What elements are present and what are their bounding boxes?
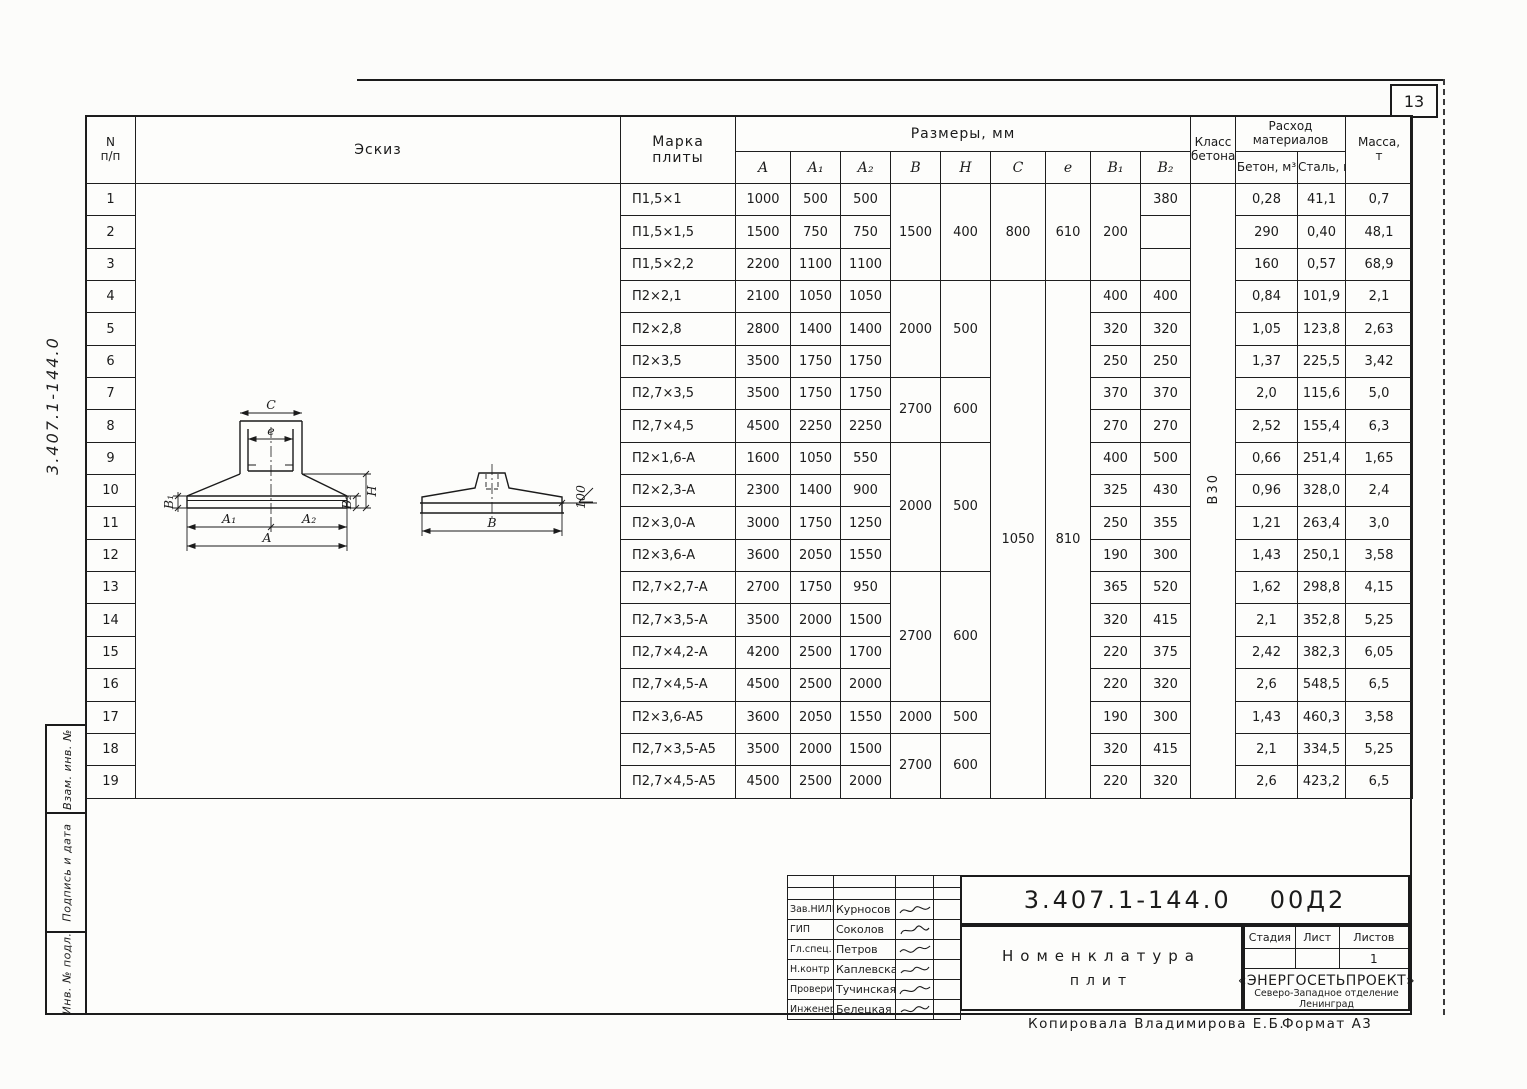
cell-concrete: 0,28 (1236, 184, 1298, 216)
cell-b2: 300 (1141, 701, 1191, 733)
cell-concrete: 1,21 (1236, 507, 1298, 539)
organization-cell: «ЭНЕРГОСЕТЬПРОЕКТ» Северо-Западное отдел… (1245, 969, 1408, 1015)
format-note: Формат А3 (1282, 1016, 1372, 1032)
signature-row-empty (788, 888, 961, 900)
col-header-materials: Расход материалов (1236, 116, 1346, 152)
cell-b2: 370 (1141, 378, 1191, 410)
cell-a1: 2500 (791, 636, 841, 668)
cell-a2: 1550 (841, 701, 891, 733)
cell-a: 1500 (736, 216, 791, 248)
cell-b: 2700 (891, 572, 941, 701)
signature-role: Н.контр (788, 960, 834, 980)
cell-a1: 1100 (791, 248, 841, 280)
page-number: 13 (1404, 92, 1424, 111)
cell-e: 810 (1046, 281, 1091, 799)
cell-b2: 430 (1141, 475, 1191, 507)
cell-b2: 355 (1141, 507, 1191, 539)
organization-city: Ленинград (1299, 1000, 1354, 1011)
signature-row: ГИП Соколов (788, 920, 961, 940)
document-title-line2: плит (1070, 973, 1133, 989)
signature-scribble (896, 900, 934, 920)
col-header-b: В (891, 152, 941, 184)
cell-b1: 220 (1091, 636, 1141, 668)
cell-a: 1600 (736, 442, 791, 474)
cell-n: 10 (86, 475, 136, 507)
cell-concrete: 2,52 (1236, 410, 1298, 442)
col-class-line1: Класс (1191, 136, 1235, 150)
cell-b1: 190 (1091, 701, 1141, 733)
cell-h: 500 (941, 281, 991, 378)
cell-steel: 423,2 (1298, 766, 1346, 798)
cell-a: 2100 (736, 281, 791, 313)
cell-h: 600 (941, 733, 991, 798)
cell-mass: 6,3 (1346, 410, 1413, 442)
cell-b1: 320 (1091, 733, 1141, 765)
cell-concrete: 2,1 (1236, 733, 1298, 765)
cell-a2: 1100 (841, 248, 891, 280)
col-header-mass: Масса, т (1346, 116, 1413, 184)
cell-mark: П2,7×4,5-А (621, 669, 736, 701)
cell-steel: 225,5 (1298, 345, 1346, 377)
stamp-box-inv-podl: Инв. № подл. (45, 931, 89, 1015)
cell-a2: 750 (841, 216, 891, 248)
cell-a2: 2250 (841, 410, 891, 442)
cell-a2: 1050 (841, 281, 891, 313)
cell-mass: 4,15 (1346, 572, 1413, 604)
sheets-label: Листов (1340, 927, 1408, 948)
dim-label-b1: В₁ (161, 495, 176, 510)
signature-row-empty (788, 876, 961, 888)
col-header-h: Н (941, 152, 991, 184)
cell-n: 11 (86, 507, 136, 539)
cell-mark: П2,7×4,5 (621, 410, 736, 442)
side-section-figure: В 100 (420, 464, 597, 536)
signature-table: Зав.НИЛКЭ Курносов ГИП Соколов Гл.спец. … (787, 875, 961, 1020)
cell-b1: 365 (1091, 572, 1141, 604)
col-header-b1: В₁ (1091, 152, 1141, 184)
cell-b2: 300 (1141, 539, 1191, 571)
col-header-concrete: Бетон, м³ (1236, 152, 1298, 184)
col-header-steel: Сталь, кг (1298, 152, 1346, 184)
cell-mass: 6,5 (1346, 766, 1413, 798)
dim-label-h: H (364, 484, 379, 497)
cell-a2: 1750 (841, 345, 891, 377)
stamp-label: Подпись и дата (61, 823, 74, 921)
cell-steel: 382,3 (1298, 636, 1346, 668)
cell-b2: 320 (1141, 313, 1191, 345)
cell-a2: 2000 (841, 766, 891, 798)
cell-a2: 2000 (841, 669, 891, 701)
cell-steel: 123,8 (1298, 313, 1346, 345)
cell-concrete: 2,1 (1236, 604, 1298, 636)
cell-b1: 270 (1091, 410, 1141, 442)
cell-a: 3600 (736, 539, 791, 571)
sheet-label: Лист (1296, 927, 1340, 948)
cell-b2: 270 (1141, 410, 1191, 442)
elevation-mark-100: 100 (573, 485, 588, 509)
cell-b1: 250 (1091, 345, 1141, 377)
scanned-drawing-sheet: { "page": { "number": "13", "copied_line… (0, 0, 1527, 1089)
document-number-cell: 3.407.1-144.0 00Д2 (960, 875, 1410, 925)
signature-scribble (896, 980, 934, 1000)
cell-b1: 250 (1091, 507, 1141, 539)
cell-n: 1 (86, 184, 136, 216)
signature-role: ГИП (788, 920, 834, 940)
cell-a2: 500 (841, 184, 891, 216)
signature-name: Петров (834, 940, 896, 960)
cell-b2: 380 (1141, 184, 1191, 216)
cell-n: 12 (86, 539, 136, 571)
front-section-figure: C e В₁ В₂ H А₁ А₂ А (161, 397, 379, 551)
cell-a: 2200 (736, 248, 791, 280)
cell-steel: 251,4 (1298, 442, 1346, 474)
cell-n: 18 (86, 733, 136, 765)
cell-n: 5 (86, 313, 136, 345)
dim-label-b: В (486, 515, 496, 530)
cell-b1: 220 (1091, 669, 1141, 701)
cell-a: 3500 (736, 604, 791, 636)
cell-concrete: 1,05 (1236, 313, 1298, 345)
cell-a1: 1750 (791, 572, 841, 604)
cell-b2: 415 (1141, 733, 1191, 765)
dim-label-b2: В₂ (339, 495, 354, 510)
cell-a: 2700 (736, 572, 791, 604)
cell-a1: 2000 (791, 604, 841, 636)
cell-b: 2000 (891, 701, 941, 733)
cell-mark: П2,7×3,5 (621, 378, 736, 410)
cell-concrete: 2,6 (1236, 766, 1298, 798)
cell-mark: П1,5×2,2 (621, 248, 736, 280)
cell-n: 15 (86, 636, 136, 668)
cell-b2: 320 (1141, 669, 1191, 701)
col-header-c: С (991, 152, 1046, 184)
stamp-label: Взам. инв. № (61, 729, 74, 810)
cell-steel: 298,8 (1298, 572, 1346, 604)
signature-row: Проверила Тучинская (788, 980, 961, 1000)
cell-mark: П2×2,8 (621, 313, 736, 345)
cell-mass: 5,25 (1346, 604, 1413, 636)
cell-a2: 1500 (841, 733, 891, 765)
cell-mass: 5,0 (1346, 378, 1413, 410)
cell-h: 600 (941, 378, 991, 443)
cell-b1 (1141, 248, 1191, 280)
signature-scribble (896, 1000, 934, 1020)
cell-a2: 1500 (841, 604, 891, 636)
cell-steel: 352,8 (1298, 604, 1346, 636)
signature-row: Зав.НИЛКЭ Курносов (788, 900, 961, 920)
cell-n: 13 (86, 572, 136, 604)
cell-a1: 1750 (791, 507, 841, 539)
stage-value (1245, 949, 1296, 968)
cell-steel: 68,9 (1346, 248, 1413, 280)
signature-role: Инженер (788, 1000, 834, 1020)
cell-b1: 320 (1091, 313, 1141, 345)
col-header-e: е (1046, 152, 1091, 184)
cell-a2: 550 (841, 442, 891, 474)
cell-n: 6 (86, 345, 136, 377)
cell-h: 600 (941, 572, 991, 701)
cell-a1: 1050 (791, 442, 841, 474)
cell-a1: 2050 (791, 539, 841, 571)
vertical-doc-number-text: 3.407.1-144.0 (43, 336, 62, 475)
col-header-sketch: Эскиз (136, 116, 621, 184)
cell-a1: 2050 (791, 701, 841, 733)
cell-a2: 1250 (841, 507, 891, 539)
dim-label-c: C (266, 397, 276, 412)
cell-b2: 290 (1236, 216, 1298, 248)
col-header-number: N п/п (86, 116, 136, 184)
cell-steel: 250,1 (1298, 539, 1346, 571)
stamp-box-podpis-data: Подпись и дата (45, 812, 89, 933)
cell-mark: П2,7×4,2-А (621, 636, 736, 668)
stamp-label: Инв. № подл. (61, 932, 74, 1014)
col-header-a1: А₁ (791, 152, 841, 184)
cell-mark: П2×3,6-А5 (621, 701, 736, 733)
cell-steel: 328,0 (1298, 475, 1346, 507)
organization-name: «ЭНЕРГОСЕТЬПРОЕКТ» (1238, 973, 1415, 989)
cell-b2: 520 (1141, 572, 1191, 604)
cell-b: 2000 (891, 442, 941, 571)
signature-row: Н.контр Каплевская (788, 960, 961, 980)
cell-a2: 1750 (841, 378, 891, 410)
cell-a1: 1050 (791, 281, 841, 313)
col-header-a2: А₂ (841, 152, 891, 184)
cell-a: 4500 (736, 410, 791, 442)
cell-concrete: 0,96 (1236, 475, 1298, 507)
cell-steel: 41,1 (1298, 184, 1346, 216)
cell-concrete: 1,62 (1236, 572, 1298, 604)
cell-mass: 3,0 (1346, 507, 1413, 539)
cell-mark: П2×3,5 (621, 345, 736, 377)
cell-concrete: 2,42 (1236, 636, 1298, 668)
cell-a: 3600 (736, 701, 791, 733)
cell-a1: 1750 (791, 345, 841, 377)
col-mark-line1: Марка (621, 134, 735, 150)
stage-header-row: Стадия Лист Листов (1245, 927, 1408, 949)
cell-concrete: 0,84 (1236, 281, 1298, 313)
cell-a: 4500 (736, 766, 791, 798)
cell-e: 610 (1046, 184, 1091, 281)
cell-b1: 320 (1091, 604, 1141, 636)
cell-n: 8 (86, 410, 136, 442)
col-mass-line2: т (1346, 150, 1412, 164)
cell-b2: 250 (1141, 345, 1191, 377)
cell-n: 9 (86, 442, 136, 474)
cell-n: 19 (86, 766, 136, 798)
copied-by-note: Копировала Владимирова Е.Б. (1028, 1016, 1285, 1032)
cell-a: 2300 (736, 475, 791, 507)
cell-a1: 2000 (791, 733, 841, 765)
signature-row: Инженер Белецкая (788, 1000, 961, 1020)
cell-b: 2000 (891, 281, 941, 378)
cell-a: 3500 (736, 345, 791, 377)
cell-a2: 950 (841, 572, 891, 604)
cell-steel: 101,9 (1298, 281, 1346, 313)
cell-mark: П2×3,0-А (621, 507, 736, 539)
cell-a: 3500 (736, 733, 791, 765)
cell-h: 500 (941, 442, 991, 571)
cell-mass: 2,1 (1346, 281, 1413, 313)
col-materials-line1: Расход (1236, 120, 1345, 134)
signature-name: Каплевская (834, 960, 896, 980)
cell-concrete: 2,0 (1236, 378, 1298, 410)
sheet-value (1296, 949, 1340, 968)
col-number-line2: п/п (86, 150, 135, 164)
stage-values-row: 1 (1245, 949, 1408, 969)
cell-a1: 1400 (791, 475, 841, 507)
cell-concrete: 2,6 (1236, 669, 1298, 701)
col-header-concrete-class: Класс бетона (1191, 116, 1236, 184)
cell-concrete: 1,37 (1236, 345, 1298, 377)
cell-b2: 500 (1141, 442, 1191, 474)
cell-mass: 2,63 (1346, 313, 1413, 345)
cell-mark: П2,7×3,5-А (621, 604, 736, 636)
cell-n: 3 (86, 248, 136, 280)
sheets-value: 1 (1340, 949, 1408, 968)
dim-label-a2: А₂ (301, 511, 316, 526)
cell-mass: 5,25 (1346, 733, 1413, 765)
cell-a1: 750 (791, 216, 841, 248)
cell-b: 2700 (891, 733, 941, 798)
col-mark-line2: плиты (621, 150, 735, 166)
cell-a: 4200 (736, 636, 791, 668)
cell-a1: 1400 (791, 313, 841, 345)
col-number-line1: N (86, 136, 135, 150)
dim-label-a: А (261, 530, 271, 545)
cell-b2: 415 (1141, 604, 1191, 636)
cell-b1 (1141, 216, 1191, 248)
cell-b2: 375 (1141, 636, 1191, 668)
cell-a: 4500 (736, 669, 791, 701)
cell-mass: 0,7 (1346, 184, 1413, 216)
cell-a: 3000 (736, 507, 791, 539)
cell-a1: 2500 (791, 669, 841, 701)
cell-mark: П2×2,1 (621, 281, 736, 313)
signature-scribble (896, 920, 934, 940)
cell-b1: 400 (1091, 281, 1141, 313)
cell-mass: 3,58 (1346, 539, 1413, 571)
cell-mark: П2,7×2,7-А (621, 572, 736, 604)
cell-b2: 160 (1236, 248, 1298, 280)
cell-b1: 400 (1091, 442, 1141, 474)
signature-role: Гл.спец. (788, 940, 834, 960)
cell-h: 500 (941, 701, 991, 733)
cell-concrete: 0,57 (1298, 248, 1346, 280)
signature-scribble (896, 940, 934, 960)
cell-a: 1000 (736, 184, 791, 216)
cell-mark: П2×3,6-А (621, 539, 736, 571)
cell-mass: 1,65 (1346, 442, 1413, 474)
cell-c: 1050 (991, 281, 1046, 799)
signature-name: Белецкая (834, 1000, 896, 1020)
cell-mark: П1,5×1 (621, 184, 736, 216)
cell-steel: 155,4 (1298, 410, 1346, 442)
signature-name: Соколов (834, 920, 896, 940)
concrete-class-value: В30 (1206, 473, 1221, 504)
document-title-line1: Номенклатура (1002, 947, 1201, 965)
cell-a1: 2250 (791, 410, 841, 442)
cell-b1: 370 (1091, 378, 1141, 410)
cell-a1: 2500 (791, 766, 841, 798)
cell-concrete: 0,66 (1236, 442, 1298, 474)
signature-name: Курносов (834, 900, 896, 920)
cell-mass: 3,42 (1346, 345, 1413, 377)
col-header-sizes: Размеры, мм (736, 116, 1191, 152)
cell-steel: 548,5 (1298, 669, 1346, 701)
col-header-b2: В₂ (1141, 152, 1191, 184)
cell-n: 2 (86, 216, 136, 248)
cell-a1: 1750 (791, 378, 841, 410)
dim-label-a1: А₁ (221, 511, 236, 526)
stage-sheet-block: Стадия Лист Листов 1 «ЭНЕРГОСЕТЬПРОЕКТ» … (1243, 925, 1410, 1011)
cell-steel: 460,3 (1298, 701, 1346, 733)
cell-mass: 2,4 (1346, 475, 1413, 507)
cell-n: 14 (86, 604, 136, 636)
cell-a2: 900 (841, 475, 891, 507)
cell-steel: 334,5 (1298, 733, 1346, 765)
cell-b2: 400 (1141, 281, 1191, 313)
cell-a: 2800 (736, 313, 791, 345)
sheet-right-trim-line (1443, 79, 1445, 1015)
cell-b2: 320 (1141, 766, 1191, 798)
cell-b1: 190 (1091, 539, 1141, 571)
document-suffix: 00Д2 (1270, 886, 1347, 914)
cell-mark: П1,5×1,5 (621, 216, 736, 248)
cell-b: 1500 (891, 184, 941, 281)
col-class-line2: бетона (1191, 150, 1235, 164)
cell-steel: 263,4 (1298, 507, 1346, 539)
cell-n: 4 (86, 281, 136, 313)
cell-n: 16 (86, 669, 136, 701)
cell-mark: П2×2,3-А (621, 475, 736, 507)
cell-concrete: 1,43 (1236, 539, 1298, 571)
cell-mark: П2,7×4,5-А5 (621, 766, 736, 798)
signature-role: Проверила (788, 980, 834, 1000)
cell-concrete: 0,40 (1298, 216, 1346, 248)
signature-row: Гл.спец. Петров (788, 940, 961, 960)
cell-steel: 115,6 (1298, 378, 1346, 410)
cell-mass: 6,5 (1346, 669, 1413, 701)
cell-h: 400 (941, 184, 991, 281)
cell-a1: 500 (791, 184, 841, 216)
cell-mark: П2,7×3,5-А5 (621, 733, 736, 765)
cell-n: 7 (86, 378, 136, 410)
cell-concrete: 1,43 (1236, 701, 1298, 733)
col-header-mark: Марка плиты (621, 116, 736, 184)
dim-label-e: e (267, 423, 274, 438)
document-number: 3.407.1-144.0 (1024, 886, 1232, 914)
stage-label: Стадия (1245, 927, 1296, 948)
page-number-box: 13 (1390, 84, 1438, 118)
stamp-box-vzam-inv: Взам. инв. № (45, 724, 89, 814)
signature-name: Тучинская (834, 980, 896, 1000)
cell-mass: 3,58 (1346, 701, 1413, 733)
table-header: N п/п Эскиз Марка плиты Размеры, мм Клас… (86, 116, 1413, 184)
cell-a2: 1400 (841, 313, 891, 345)
col-mass-line1: Масса, (1346, 136, 1412, 150)
document-title-cell: Номенклатура плит (960, 925, 1243, 1011)
signature-scribble (896, 960, 934, 980)
cell-concrete-class: В30 (1191, 184, 1236, 799)
cell-b1: 325 (1091, 475, 1141, 507)
cell-mark: П2×1,6-А (621, 442, 736, 474)
col-materials-line2: материалов (1236, 134, 1345, 148)
cell-steel: 48,1 (1346, 216, 1413, 248)
cell-a: 3500 (736, 378, 791, 410)
cell-b: 2700 (891, 378, 941, 443)
cell-a2: 1550 (841, 539, 891, 571)
cell-b1: 200 (1091, 184, 1141, 281)
